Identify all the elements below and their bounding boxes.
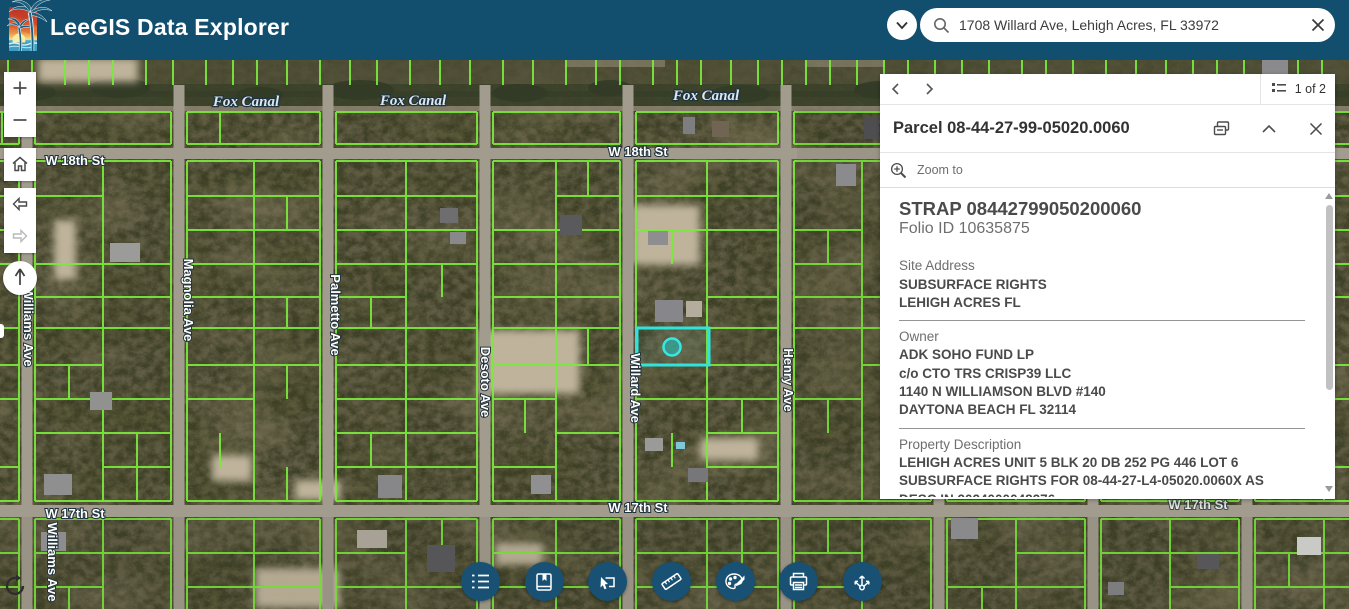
svg-text:W 17th St: W 17th St [1168, 497, 1228, 512]
svg-text:W 18th St: W 18th St [608, 144, 668, 159]
svg-text:Williams Ave: Williams Ave [45, 522, 60, 601]
svg-text:W 18th St: W 18th St [45, 153, 105, 168]
svg-text:Fox Canal: Fox Canal [379, 93, 447, 109]
svg-text:Henry Ave: Henry Ave [781, 348, 796, 411]
svg-text:W 17th St: W 17th St [608, 500, 668, 515]
svg-text:Fox Canal: Fox Canal [672, 88, 740, 104]
svg-text:Palmetto Ave: Palmetto Ave [328, 274, 343, 355]
svg-text:W 17th St: W 17th St [45, 506, 105, 521]
svg-text:Fox Canal: Fox Canal [212, 94, 280, 110]
svg-text:Magnolia Ave: Magnolia Ave [181, 259, 196, 342]
svg-text:Williams Ave: Williams Ave [21, 287, 36, 366]
svg-text:Desoto Ave: Desoto Ave [478, 347, 493, 418]
svg-text:Willard Ave: Willard Ave [628, 353, 643, 423]
